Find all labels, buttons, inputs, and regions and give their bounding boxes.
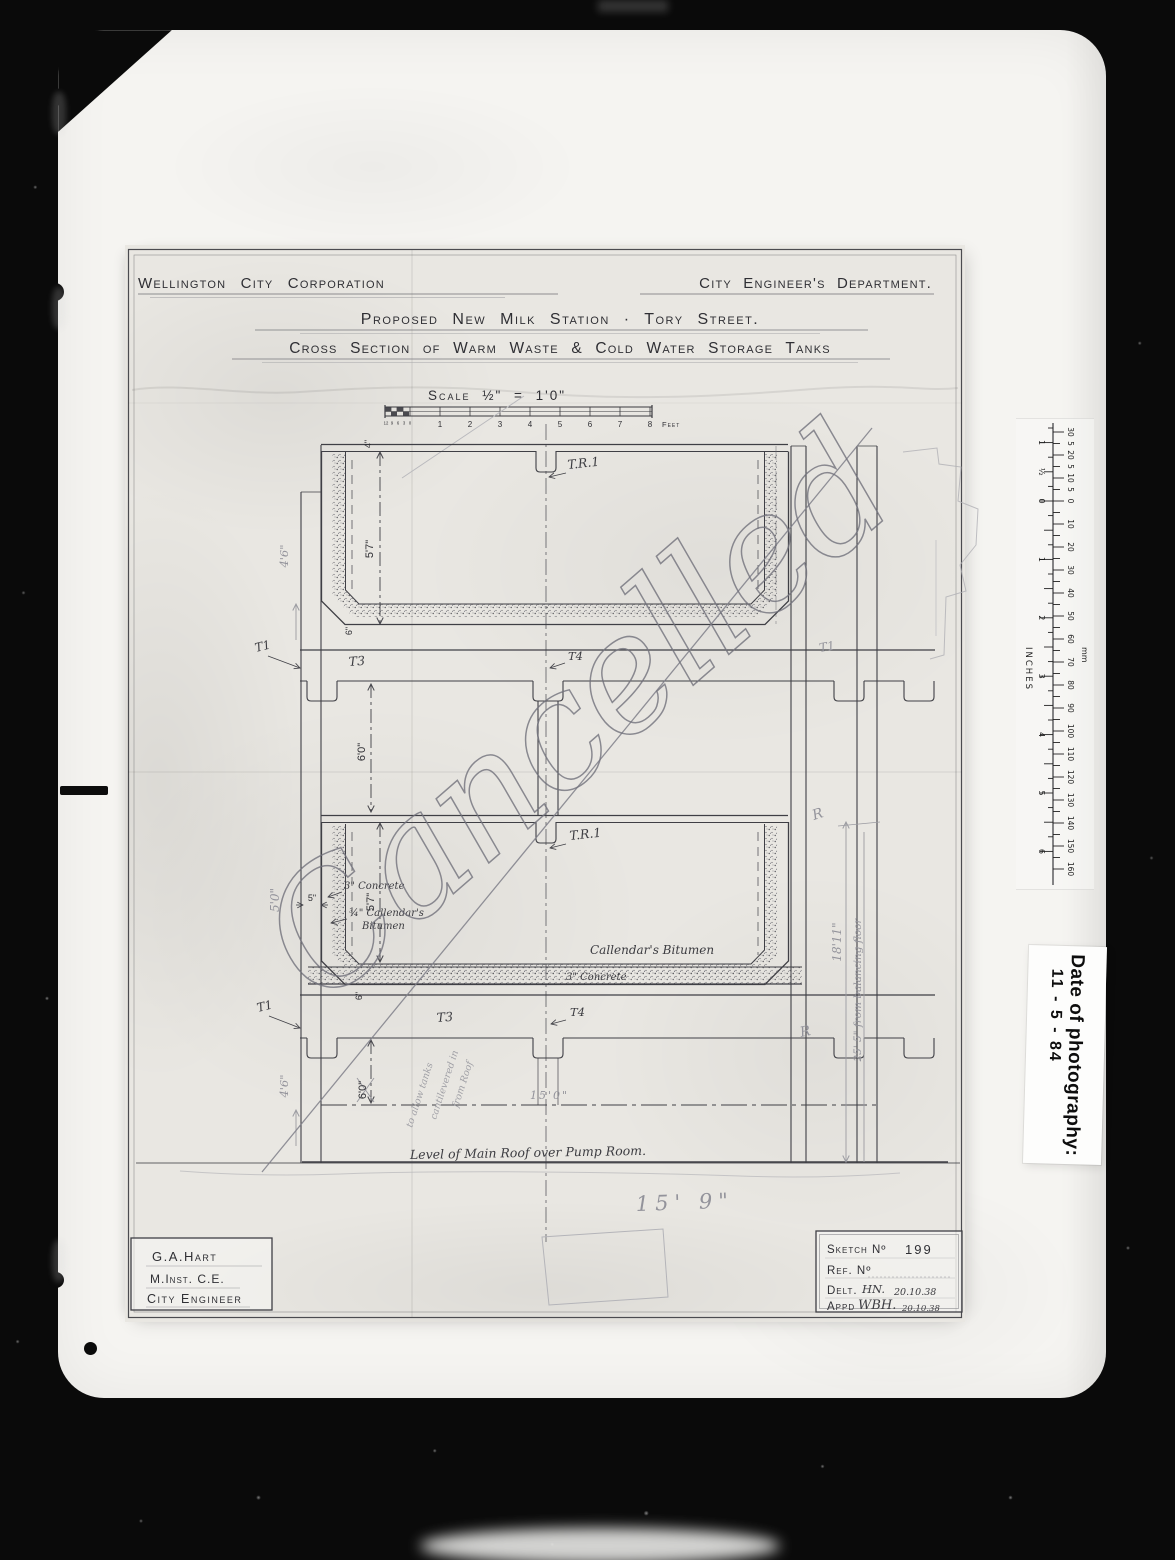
dim-tank1-depth: 5'7" bbox=[364, 540, 376, 558]
cancelled-scrawl-text: Cancelled bbox=[224, 391, 927, 1036]
scale-inch-number: 12 bbox=[384, 421, 389, 426]
ruler-mm-number: 20 bbox=[1066, 542, 1075, 552]
t1-upper-right-label: T1 bbox=[818, 638, 836, 655]
t1-lower-left-label: T1 bbox=[255, 998, 274, 1015]
dept-title: City Engineer's Department. bbox=[699, 275, 932, 292]
film-edge-mark bbox=[52, 1240, 66, 1282]
ruler-inch-number: 1 bbox=[1037, 440, 1046, 445]
appd-date: 20.10.38 bbox=[901, 1304, 940, 1314]
engineering-drawing: Wellington City Corporation City Enginee… bbox=[0, 0, 1175, 1560]
dim-18-11: 18'11" bbox=[830, 922, 844, 961]
ruler-mm-number: 130 bbox=[1066, 793, 1075, 808]
archival-photo-of-drawing: Wellington City Corporation City Enginee… bbox=[0, 0, 1175, 1560]
scale-label: Scale ½" = 1'0" bbox=[428, 388, 566, 403]
ruler-inch-number: 4 bbox=[1037, 732, 1046, 737]
scale-inch-number: 9 bbox=[391, 421, 394, 426]
ruler-mm-number: 10 bbox=[1066, 473, 1075, 483]
dim-tank1-floor: 6" bbox=[344, 627, 354, 635]
note-bitumen-floor: Callendar's Bitumen bbox=[590, 943, 714, 957]
ruler-mm-number: 150 bbox=[1066, 839, 1075, 854]
t1-upper-left-label: T1 bbox=[253, 638, 272, 655]
dim-25-5: 25' 5" from balancing floor bbox=[852, 918, 864, 1063]
scale-foot-number: 7 bbox=[618, 420, 623, 429]
ruler-mm-number: 10 bbox=[1066, 519, 1075, 529]
ruler-inch-number: 6 bbox=[1037, 849, 1046, 854]
ruler-mm-number: 30 bbox=[1066, 427, 1075, 437]
t3-lower-label: T3 bbox=[436, 1009, 453, 1025]
scale-foot-number: 6 bbox=[588, 420, 593, 429]
dim-between-tanks: 6'0" bbox=[356, 743, 368, 761]
scale-bar: Scale ½" = 1'0" 12345678129630 Feet bbox=[384, 388, 681, 478]
drawing-title-line2: Cross Section of Warm Waste & Cold Water… bbox=[289, 340, 831, 357]
pencil-r-upper: R bbox=[809, 805, 825, 824]
sheet-header: Wellington City Corporation City Enginee… bbox=[138, 275, 934, 363]
ruler-mm-number: 70 bbox=[1066, 657, 1075, 667]
ruler-inch-number: 2 bbox=[1037, 615, 1046, 620]
film-top-smudge bbox=[598, 0, 668, 12]
engineer-role: City Engineer bbox=[147, 1292, 242, 1306]
film-sprocket-bump bbox=[84, 1342, 97, 1355]
sketch-no-label: Sketch Nº bbox=[827, 1244, 886, 1256]
ruler-mm-number: 5 bbox=[1066, 464, 1075, 469]
ruler-mm-number: 20 bbox=[1066, 450, 1075, 460]
scale-inch-number: 3 bbox=[403, 421, 406, 426]
t4-lower-label: T4 bbox=[570, 1005, 585, 1019]
scale-inch-number: 6 bbox=[397, 421, 400, 426]
dim-wall-top: 4" bbox=[363, 440, 373, 448]
measurement-ruler: 3052051050102030405060708090100110120130… bbox=[1016, 418, 1094, 890]
film-edge-mark bbox=[52, 92, 66, 134]
scale-foot-number: 1 bbox=[438, 420, 443, 429]
ruler-mm-label: mm bbox=[1080, 647, 1089, 663]
ruler-mm-number: 80 bbox=[1066, 680, 1075, 690]
ruler-inches-label: INCHES bbox=[1023, 647, 1033, 691]
film-edge-mark bbox=[52, 287, 66, 329]
ruler-mm-number: 90 bbox=[1066, 703, 1075, 713]
scale-foot-number: 3 bbox=[498, 420, 503, 429]
tank-ref-label-top: T.R.1 bbox=[567, 454, 600, 472]
appd-label: Appd bbox=[827, 1301, 855, 1313]
ruler-inch-number: 0 bbox=[1037, 498, 1046, 503]
delt-initials: HN. bbox=[861, 1282, 885, 1296]
dim-15-9: 15' 9" bbox=[635, 1189, 734, 1216]
ruler-mm-number: 40 bbox=[1066, 588, 1075, 598]
note-roof-level: Level of Main Roof over Pump Room. bbox=[409, 1143, 646, 1162]
ruler-mm-number: 140 bbox=[1066, 816, 1075, 831]
dim-lower-mid: 6'0" bbox=[357, 1081, 369, 1099]
dim-lower-left: 4'6" bbox=[277, 1074, 291, 1098]
ruler-mm-number: 0 bbox=[1066, 499, 1075, 504]
engineer-title-block: G.A.Hart M.Inst. C.E. City Engineer bbox=[131, 1238, 272, 1310]
sketch-no-value: 199 bbox=[905, 1242, 933, 1257]
date-label-text: Date of photography: 11 - 5 - 84 bbox=[1042, 953, 1088, 1164]
film-bottom-blotch bbox=[420, 1528, 780, 1560]
ruler-inch-number: 3 bbox=[1037, 674, 1046, 679]
ruler-mm-number: 160 bbox=[1066, 862, 1075, 877]
ruler-mm-number: 100 bbox=[1066, 724, 1075, 739]
drawing-title-line1: Proposed New Milk Station · Tory Street. bbox=[361, 311, 759, 328]
note-concrete-floor: 3" Concrete bbox=[566, 972, 627, 983]
engineer-name: G.A.Hart bbox=[152, 1249, 217, 1264]
appd-signature: WBH. bbox=[858, 1298, 896, 1313]
ruler-scale: 3052051050102030405060708090100110120130… bbox=[1016, 419, 1094, 889]
dim-tank1-left: 4'6" bbox=[277, 544, 291, 568]
scale-foot-number: 8 bbox=[648, 420, 653, 429]
scale-foot-number: 2 bbox=[468, 420, 473, 429]
sketch-number-block: Sketch Nº 199 Ref. Nº Delt. HN. 20.10.38… bbox=[816, 1231, 962, 1314]
ruler-mm-number: 60 bbox=[1066, 634, 1075, 644]
ruler-inch-number: 1 bbox=[1037, 557, 1046, 562]
cancelled-watermark: Cancelled bbox=[224, 391, 927, 1172]
ref-no-label: Ref. Nº bbox=[827, 1265, 871, 1277]
ruler-inch-number: 5 bbox=[1037, 790, 1046, 795]
ruler-mm-number: 50 bbox=[1066, 611, 1075, 621]
dim-15-0: 15'0" bbox=[530, 1089, 569, 1102]
ruler-mm-number: 30 bbox=[1066, 565, 1075, 575]
ruler-inch-number: ½ bbox=[1037, 468, 1046, 476]
ruler-mm-number: 5 bbox=[1066, 441, 1075, 446]
org-title: Wellington City Corporation bbox=[138, 275, 385, 292]
ruler-mm-number: 110 bbox=[1066, 747, 1075, 762]
ruler-mm-number: 5 bbox=[1066, 487, 1075, 492]
scale-foot-number: 5 bbox=[558, 420, 563, 429]
delt-date: 20.10.38 bbox=[893, 1287, 936, 1298]
scale-foot-number: 4 bbox=[528, 420, 533, 429]
t3-upper-label: T3 bbox=[348, 653, 365, 669]
ruler-mm-number: 120 bbox=[1066, 770, 1075, 785]
scale-unit: Feet bbox=[662, 420, 680, 429]
delt-label: Delt. bbox=[827, 1285, 858, 1297]
engineer-qualification: M.Inst. C.E. bbox=[150, 1272, 225, 1286]
date-of-photography-label: Date of photography: 11 - 5 - 84 bbox=[1023, 945, 1107, 1165]
film-edge-dash bbox=[60, 786, 108, 795]
